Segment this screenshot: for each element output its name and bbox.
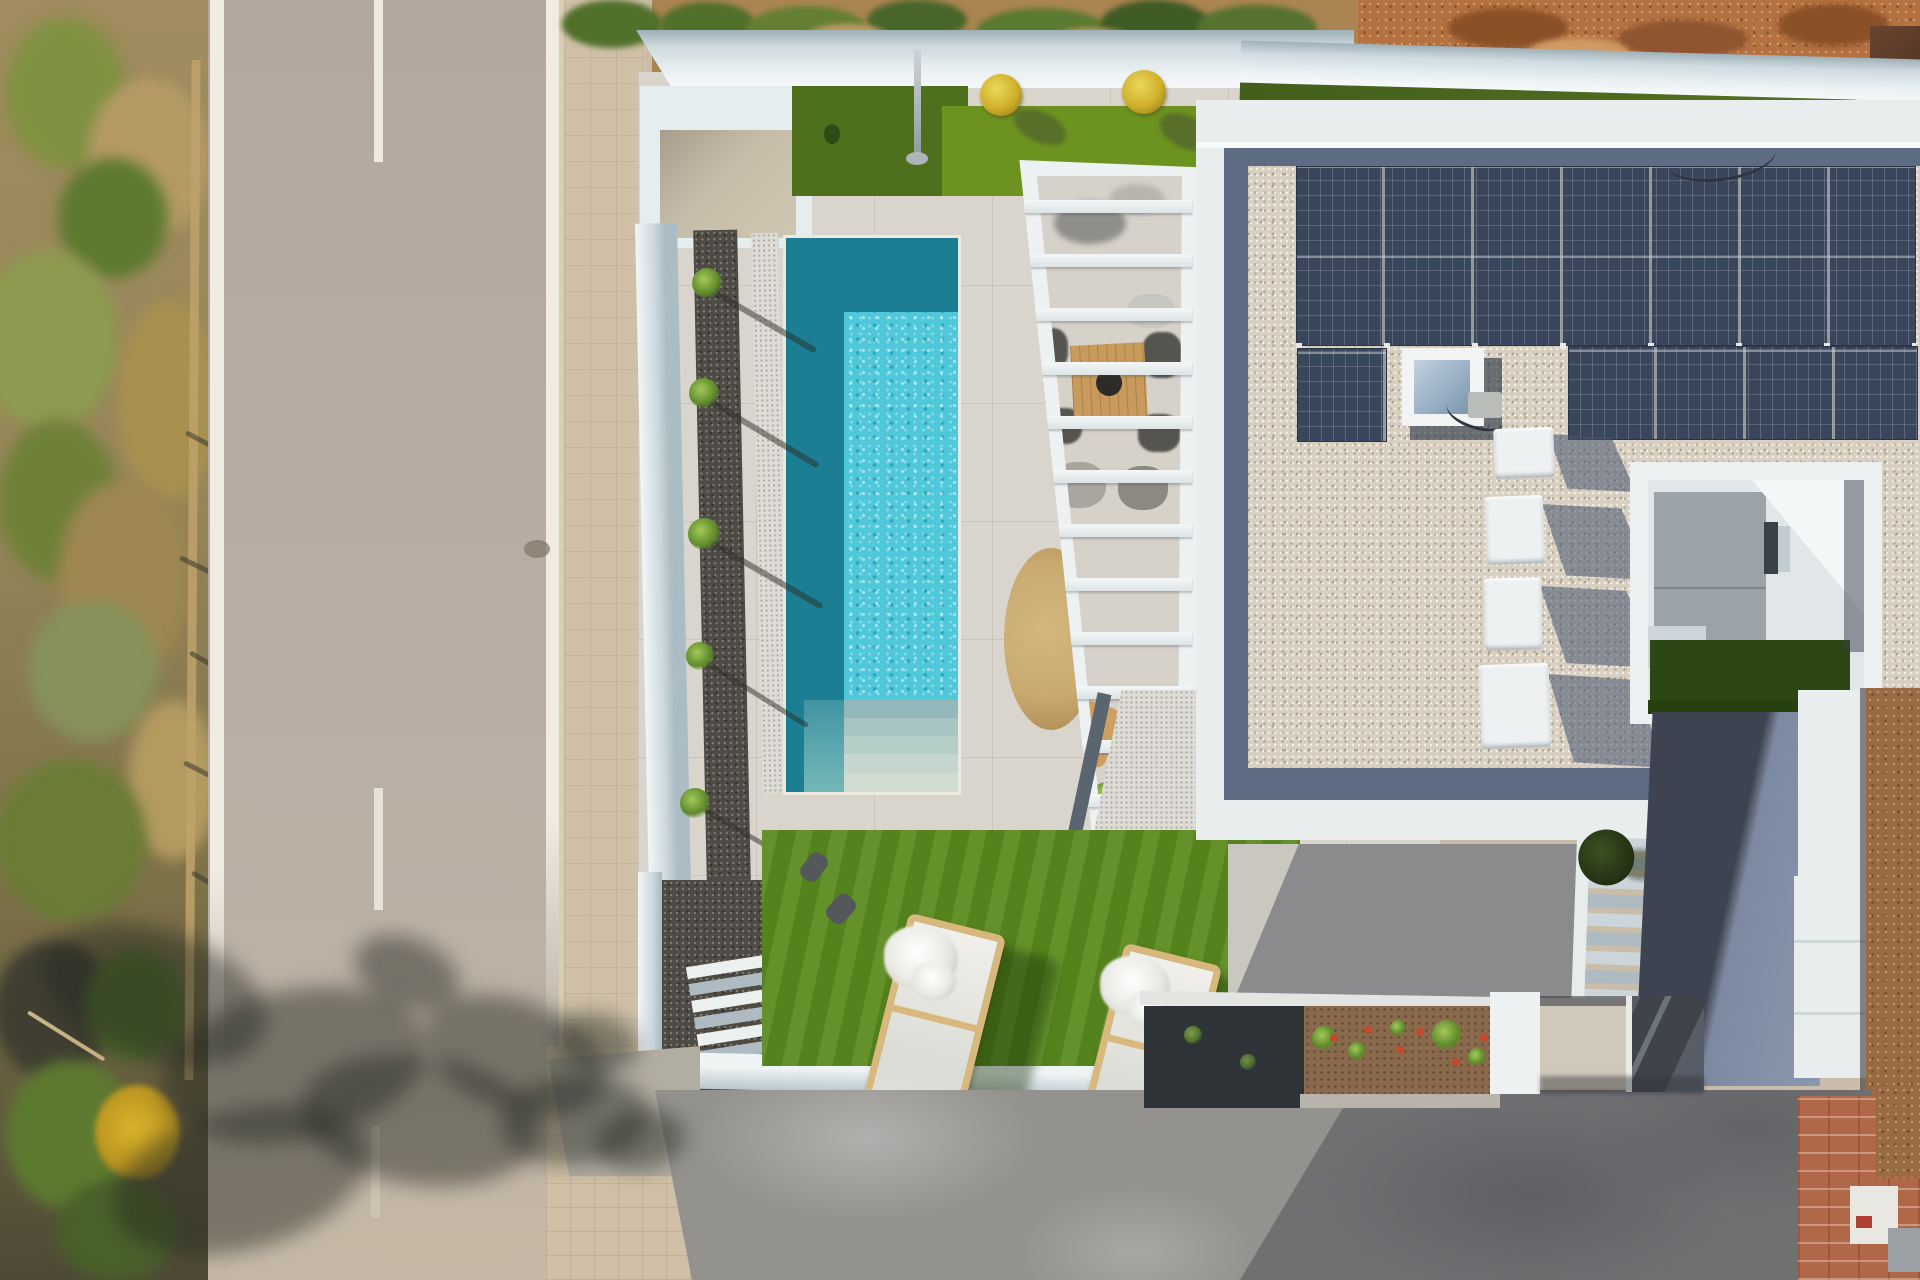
red-flower [1480,1034,1488,1042]
lower-patio [1228,844,1582,1014]
shrub-patch [0,250,118,430]
planter-box [1144,1006,1304,1108]
pool-corner-steps [804,700,844,792]
road-center-dash [374,788,383,910]
driveway-building-shadow [1240,1090,1872,1280]
entry-lintel-shadow [1540,996,1630,1006]
solar-array-row-2-left [1297,348,1387,442]
patio-shadow [1228,844,1582,1014]
red-flower [1364,1026,1372,1034]
red-flower [1452,1058,1460,1066]
courtyard-wall-shadow [1844,480,1864,652]
outdoor-shower-pole [914,50,921,158]
pool-step [844,700,958,718]
planter-plant [1184,1026,1202,1044]
road-edge-line-right [546,0,559,1045]
aerial-photo-villa [0,0,1920,1280]
manhole-patch [524,540,550,558]
ac-unit [1485,495,1545,565]
road-edge-line-left [210,0,224,1085]
tile-joint [1654,587,1766,589]
roof-border-gravel-bottom [1224,768,1656,804]
roof-border-gravel-top [1224,148,1920,166]
pool-water-sparkle [844,312,958,700]
shrub [688,518,720,550]
solar-array-row-2-right [1568,346,1918,440]
dining-table [1070,342,1148,422]
planter-plant [1240,1054,1256,1070]
gray-block [1888,1228,1920,1272]
soil-bed [1304,1006,1496,1100]
shrub [680,788,710,818]
driveway [646,1090,1872,1280]
red-flower [1330,1034,1338,1042]
ac-unit [1493,427,1555,479]
garden-curb-lower [1300,1094,1500,1108]
courtyard-window [1764,522,1778,574]
ac-unit [1483,577,1542,650]
bed-plant [1390,1020,1406,1036]
small-shrub [824,124,840,144]
shrub-patch [28,600,158,740]
shrub [689,378,719,408]
pergola-slat [1014,254,1192,267]
pergola-slat [1014,308,1192,321]
entry-wall-stub [1490,992,1540,1094]
pool-step [844,754,958,773]
bed-plant [1432,1020,1462,1050]
bed-plant [1348,1042,1366,1060]
shrub [692,268,722,298]
road-center-dash [374,0,383,162]
ramp-turf-edge [1648,700,1810,714]
corner-wall [638,872,662,1078]
pool-step [844,736,958,754]
entry-path [1540,998,1630,1088]
outdoor-shower-head [906,152,928,165]
wicker-chair [1052,462,1106,508]
pool-step [844,718,958,736]
towel [912,962,956,1000]
courtyard-window-panel [1778,526,1790,572]
red-block [1856,1216,1872,1228]
flower-pot [1122,70,1166,114]
dirt-wedge [1876,1086,1920,1178]
roof-parapet-top [1196,100,1920,148]
pergola-slat [1014,200,1192,213]
red-flower [1416,1028,1424,1036]
entry-threshold-shadow [1540,1076,1704,1094]
boundary-strip-group [635,220,809,891]
solar-array-row-1 [1296,166,1916,346]
roof-border-gravel-left [1224,148,1248,804]
pool-step [844,773,958,792]
ac-unit [1479,663,1552,749]
red-flower [1396,1046,1404,1054]
bed-plant [1468,1048,1486,1066]
courtyard [1630,462,1882,724]
swimming-pool [786,238,958,792]
shrub-patch [0,760,146,920]
dry-grass-patch [118,300,218,500]
roof-parapet-left [1196,100,1224,840]
shrub [686,642,714,670]
flower-pot [980,74,1022,116]
